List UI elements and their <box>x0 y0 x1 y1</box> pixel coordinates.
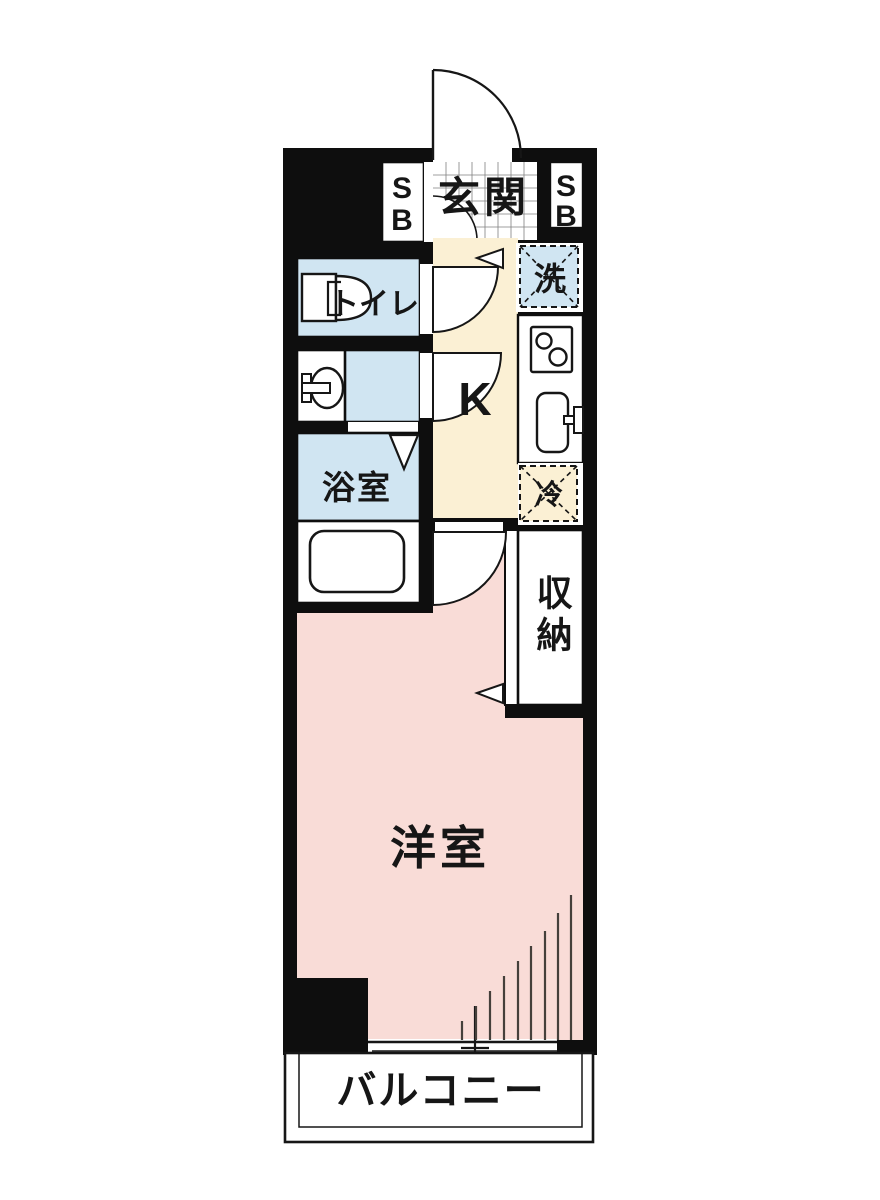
refrigerator-label: 冷 <box>535 479 563 510</box>
svg-text:S: S <box>392 172 412 205</box>
door-opening <box>420 264 433 334</box>
shoe-box-right-label: S B <box>555 170 577 233</box>
door-opening <box>435 522 503 532</box>
balcony-label: バルコニー <box>336 1069 545 1113</box>
svg-text:S: S <box>556 170 576 203</box>
toilet-label: トイレ <box>329 288 419 321</box>
kitchen-label: K <box>458 373 491 425</box>
door-opening <box>420 353 433 418</box>
washbasin-icon <box>302 368 343 408</box>
floor-plan-page: 洗 冷 トイレ 浴室 収納 <box>0 0 880 1200</box>
bathroom-label: 浴室 <box>322 469 392 506</box>
door-opening <box>433 148 512 162</box>
wall-step <box>295 978 368 1055</box>
entrance-label: 玄関 <box>438 174 530 221</box>
floor-plan-canvas: 洗 冷 トイレ 浴室 収納 <box>0 0 880 1200</box>
washing-machine-label: 洗 <box>534 261 566 297</box>
entrance-door-arc <box>433 70 521 160</box>
stove-icon <box>531 327 572 372</box>
storage-label: 収納 <box>532 574 573 658</box>
shoe-box-left-label: S B <box>391 172 413 237</box>
western-room-label: 洋室 <box>390 822 490 874</box>
niche <box>424 162 433 242</box>
door-opening <box>348 422 418 433</box>
bathtub-icon <box>310 531 404 592</box>
svg-text:B: B <box>391 204 413 237</box>
storage-door-strip <box>505 530 518 705</box>
balcony-area: バルコニー <box>285 1053 593 1142</box>
svg-text:B: B <box>555 200 577 233</box>
